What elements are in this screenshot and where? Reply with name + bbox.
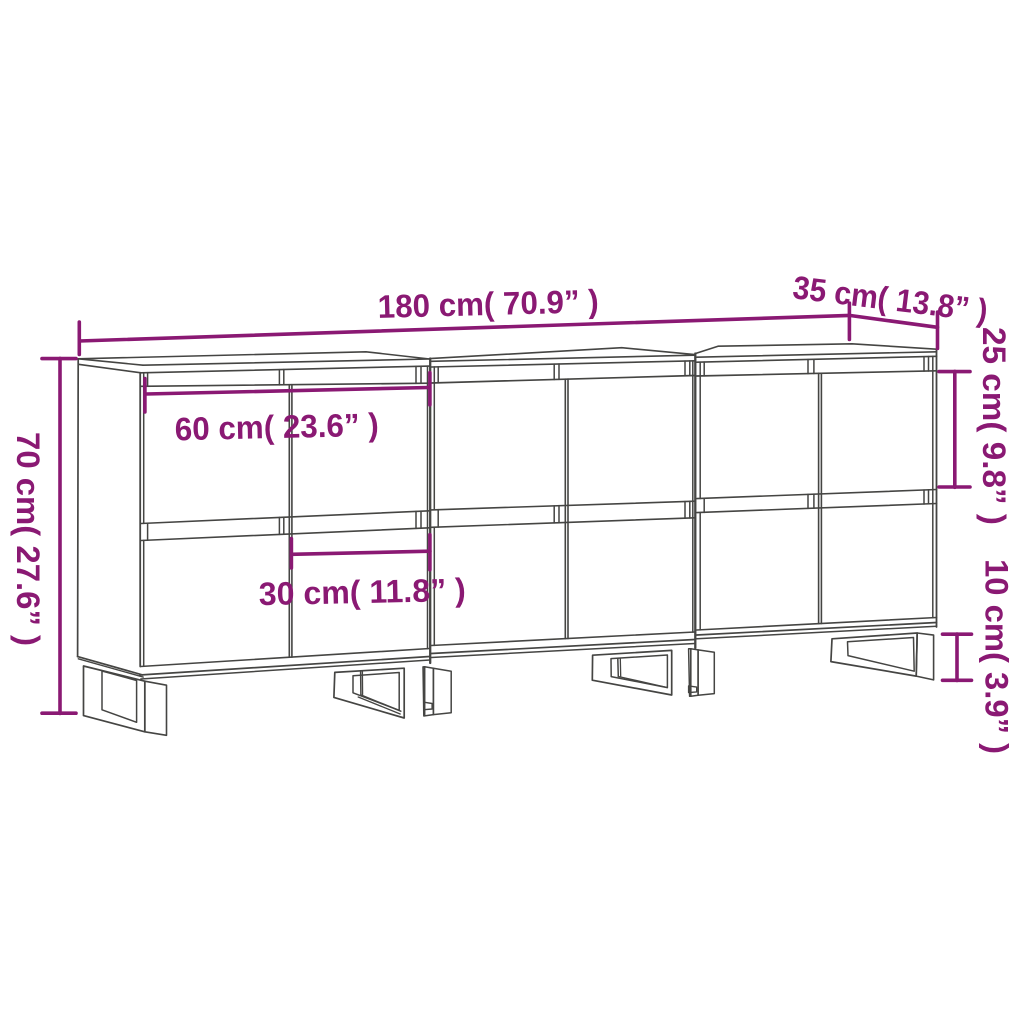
svg-text:25 cm( 9.8” ): 25 cm( 9.8” ) — [976, 327, 1012, 525]
svg-text:30 cm( 11.8” ): 30 cm( 11.8” ) — [258, 572, 466, 612]
svg-text:70 cm( 27.6” ): 70 cm( 27.6” ) — [10, 432, 46, 646]
svg-text:180 cm( 70.9” ): 180 cm( 70.9” ) — [377, 283, 599, 325]
svg-text:10 cm( 3.9” ): 10 cm( 3.9” ) — [979, 559, 1015, 754]
svg-text:60 cm( 23.6” ): 60 cm( 23.6” ) — [174, 407, 379, 448]
